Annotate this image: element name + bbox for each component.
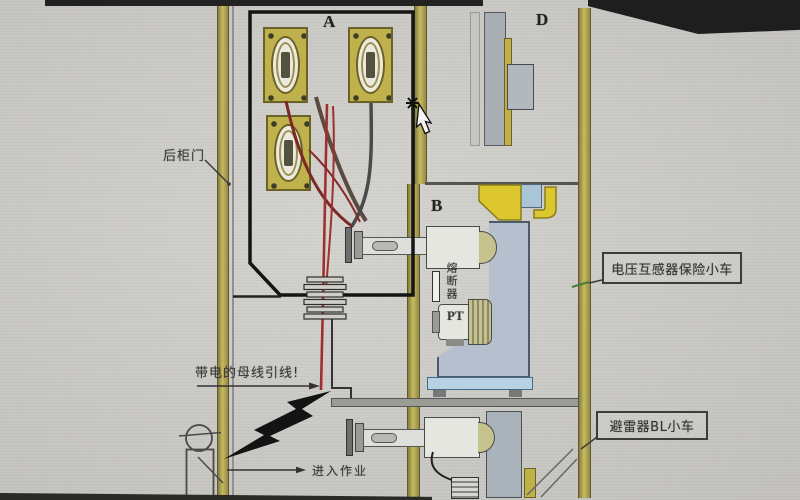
compartment-a-outline <box>45 0 483 297</box>
busbar-arrow <box>197 383 320 390</box>
person-figure <box>179 425 223 500</box>
busbar-yellow <box>479 185 556 220</box>
wall-bushing-coil <box>304 277 346 319</box>
hatch-lines <box>527 449 577 497</box>
arrester-trolley-callout: 避雷器BL小车 <box>596 411 708 440</box>
partition-step-line <box>332 316 351 398</box>
compartment-a-label: A <box>323 12 335 32</box>
arrester-trolley-callout-text: 避雷器BL小车 <box>610 416 695 435</box>
busbar-hook <box>534 187 556 218</box>
compartment-d-label: D <box>536 10 548 30</box>
mouse-cursor <box>406 98 431 134</box>
diagram-top-edge <box>45 0 483 6</box>
wall-tick <box>572 282 589 287</box>
enter-work-arrow <box>227 467 306 473</box>
rear-door-label: 后柜门 <box>163 145 205 164</box>
live-busbar-label: 带电的母线引线! <box>195 362 299 381</box>
arrester-cable <box>432 452 452 480</box>
leader-lines <box>205 160 602 449</box>
compartment-b-label: B <box>431 196 442 216</box>
vt-trolley-callout: 电压互感器保险小车 <box>602 252 742 284</box>
lightning-bolt <box>224 391 331 459</box>
vt-trolley-callout-text: 电压互感器保险小车 <box>611 259 733 278</box>
enter-work-label: 进入作业 <box>312 462 368 479</box>
screen-photo: 熔断器 PT <box>0 0 800 500</box>
